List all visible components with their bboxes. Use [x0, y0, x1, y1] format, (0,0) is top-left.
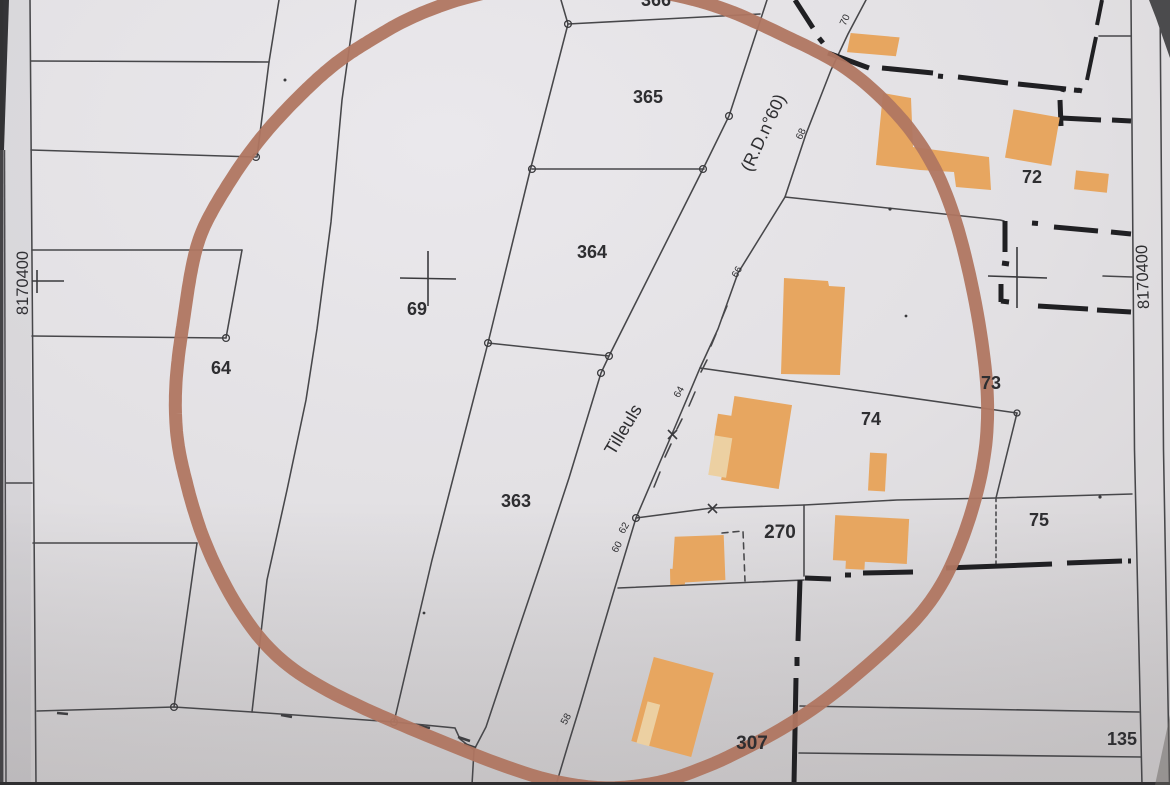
svg-text:307: 307 [736, 733, 768, 754]
svg-text:74: 74 [861, 409, 881, 429]
svg-text:364: 364 [577, 242, 607, 262]
svg-text:73: 73 [981, 373, 1001, 393]
svg-text:69: 69 [407, 299, 427, 319]
svg-text:8170400: 8170400 [1133, 245, 1153, 310]
svg-text:72: 72 [1022, 167, 1042, 187]
svg-text:135: 135 [1107, 729, 1137, 749]
svg-text:64: 64 [211, 358, 231, 378]
svg-text:366: 366 [641, 0, 671, 10]
svg-text:365: 365 [633, 87, 663, 107]
svg-text:363: 363 [501, 491, 531, 511]
svg-text:270: 270 [764, 522, 796, 543]
svg-text:75: 75 [1029, 510, 1049, 530]
